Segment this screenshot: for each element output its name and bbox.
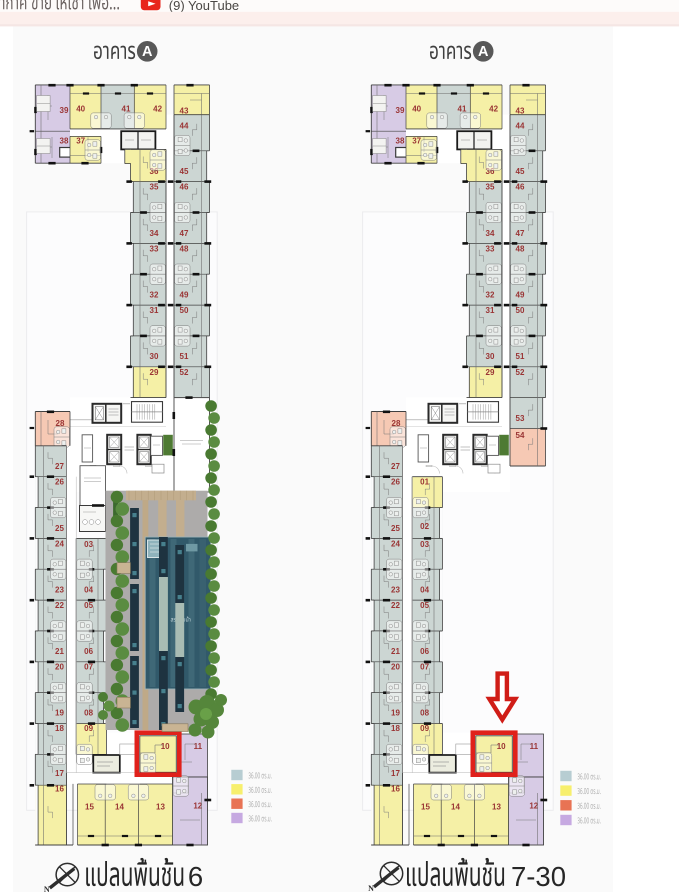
svg-text:32: 32 [486,291,495,300]
svg-text:20: 20 [55,663,64,672]
svg-text:39: 39 [60,106,69,115]
svg-text:31: 31 [150,306,159,315]
svg-text:11: 11 [194,742,203,751]
svg-text:38: 38 [396,136,405,145]
svg-text:50: 50 [516,306,525,315]
svg-text:17: 17 [391,769,400,778]
svg-text:08: 08 [84,708,93,717]
svg-text:13: 13 [156,803,165,812]
svg-text:06: 06 [84,647,93,656]
svg-text:18: 18 [391,724,400,733]
svg-text:N: N [368,884,374,892]
svg-text:07: 07 [420,663,429,672]
svg-text:37: 37 [412,136,421,145]
svg-text:14: 14 [451,803,460,812]
svg-text:49: 49 [180,291,189,300]
svg-text:24: 24 [55,540,64,549]
svg-text:43: 43 [180,107,189,116]
svg-text:01: 01 [420,478,429,487]
svg-text:37: 37 [76,136,85,145]
svg-text:50: 50 [180,306,189,315]
svg-text:(9) YouTube: (9) YouTube [169,0,239,13]
svg-text:03: 03 [84,540,93,549]
svg-text:05: 05 [84,601,93,610]
svg-text:6: 6 [188,861,203,892]
svg-text:40: 40 [412,105,421,114]
svg-text:16: 16 [55,785,64,794]
svg-text:49: 49 [516,291,525,300]
svg-text:35: 35 [486,183,495,192]
svg-text:25: 25 [55,524,64,533]
svg-text:45: 45 [180,167,189,176]
svg-text:19: 19 [391,708,400,717]
svg-text:54: 54 [516,431,525,440]
svg-text:29: 29 [486,368,495,377]
svg-text:22: 22 [55,601,64,610]
svg-text:44: 44 [516,122,525,131]
svg-text:48: 48 [180,245,189,254]
svg-text:19: 19 [55,708,64,717]
svg-text:34: 34 [486,229,495,238]
svg-text:A: A [142,44,153,60]
svg-text:52: 52 [516,368,525,377]
svg-text:41: 41 [122,105,131,114]
svg-text:48: 48 [516,245,525,254]
svg-text:06: 06 [420,647,429,656]
svg-text:18: 18 [55,724,64,733]
svg-text:45: 45 [516,167,525,176]
svg-text:7-30: 7-30 [511,861,566,892]
svg-text:51: 51 [516,352,525,361]
svg-text:26: 26 [391,478,400,487]
svg-text:09: 09 [84,724,93,733]
svg-text:42: 42 [489,105,498,114]
svg-text:39: 39 [396,106,405,115]
svg-text:38: 38 [60,136,69,145]
svg-text:40: 40 [76,105,85,114]
svg-text:47: 47 [180,229,189,238]
svg-text:16: 16 [391,785,400,794]
svg-text:53: 53 [516,414,525,423]
svg-text:30: 30 [150,352,159,361]
svg-text:05: 05 [420,601,429,610]
svg-text:04: 04 [84,585,93,594]
svg-text:41: 41 [458,105,467,114]
svg-text:08: 08 [420,708,429,717]
svg-text:04: 04 [420,585,429,594]
svg-text:10: 10 [161,742,170,751]
svg-text:11: 11 [530,742,539,751]
svg-text:10: 10 [497,742,506,751]
svg-text:09: 09 [420,724,429,733]
svg-text:46: 46 [180,183,189,192]
svg-text:02: 02 [420,522,429,531]
svg-text:46: 46 [516,183,525,192]
svg-text:29: 29 [150,368,159,377]
svg-text:31: 31 [486,306,495,315]
svg-text:14: 14 [115,803,124,812]
svg-text:21: 21 [391,647,400,656]
svg-text:21: 21 [55,647,64,656]
svg-text:35: 35 [150,183,159,192]
svg-text:44: 44 [180,122,189,131]
svg-text:07: 07 [84,663,93,672]
svg-text:33: 33 [150,245,159,254]
svg-text:24: 24 [391,540,400,549]
svg-text:N: N [44,885,50,892]
svg-text:25: 25 [391,524,400,533]
svg-text:47: 47 [516,229,525,238]
svg-text:42: 42 [153,105,162,114]
svg-text:27: 27 [391,462,400,471]
svg-text:43: 43 [516,107,525,116]
svg-text:03: 03 [420,540,429,549]
svg-text:23: 23 [391,585,400,594]
svg-text:A: A [478,44,489,60]
svg-text:52: 52 [180,368,189,377]
svg-text:51: 51 [180,352,189,361]
svg-text:30: 30 [486,352,495,361]
svg-text:15: 15 [421,803,430,812]
svg-text:34: 34 [150,229,159,238]
svg-text:32: 32 [150,291,159,300]
svg-text:27: 27 [55,462,64,471]
svg-text:23: 23 [55,585,64,594]
svg-text:15: 15 [85,803,94,812]
svg-text:13: 13 [492,803,501,812]
svg-text:33: 33 [486,245,495,254]
svg-text:26: 26 [55,478,64,487]
svg-text:17: 17 [55,769,64,778]
svg-text:20: 20 [391,663,400,672]
svg-text:22: 22 [391,601,400,610]
